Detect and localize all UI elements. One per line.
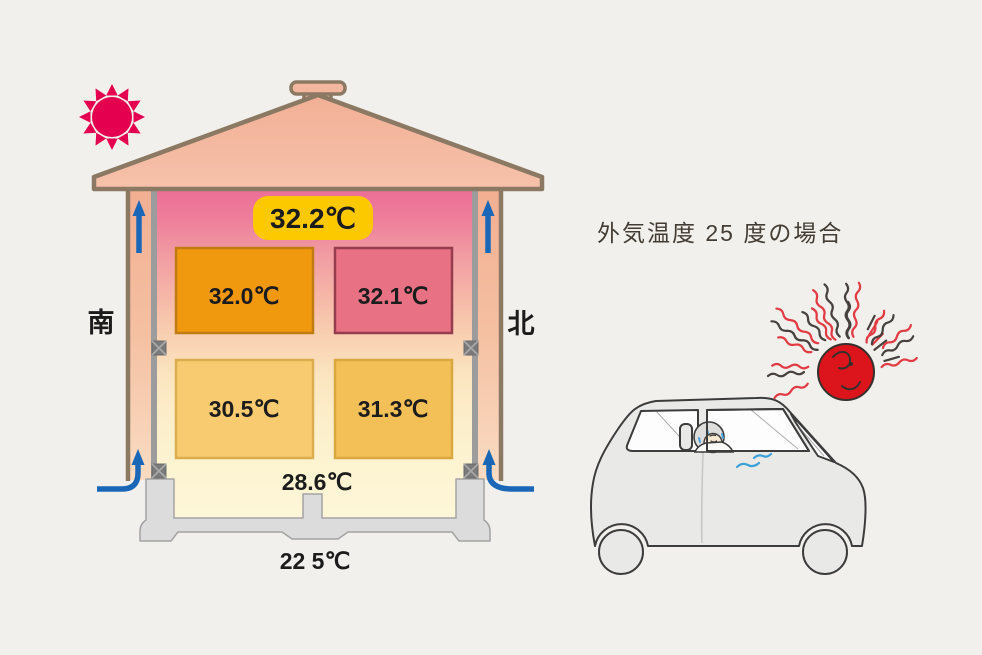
room-temp-label: 31.3℃ (358, 396, 429, 422)
sun-core (92, 97, 132, 137)
room-temp-label: 32.1℃ (358, 283, 429, 309)
inner-wall-south (151, 187, 157, 480)
room-temp-label: 30.5℃ (209, 396, 280, 422)
joint-marker (464, 341, 478, 355)
car-illustration (591, 398, 866, 574)
wheel-front (803, 530, 847, 574)
seat-headrest (680, 424, 692, 450)
room-temp-label: 32.0℃ (209, 283, 280, 309)
wheel-rear (599, 530, 643, 574)
attic-temp-label: 32.2℃ (270, 203, 356, 234)
sun-eye (849, 362, 853, 366)
condition-heading: 外気温度 25 度の場合 (597, 220, 843, 246)
north-label: 北 (508, 309, 535, 339)
chimney-cap (291, 82, 345, 94)
joint-marker (152, 464, 166, 478)
thermal-diagram-scene: 32.2℃ 32.0℃ 32.1℃ 30.5℃ 31.3℃ 28.6℃ 22 5… (0, 0, 982, 655)
roof (94, 95, 542, 189)
underfloor-temp-label: 28.6℃ (282, 469, 353, 495)
hot-sun-icon (768, 283, 917, 400)
joint-marker (464, 464, 478, 478)
page-background: 32.2℃ 32.0℃ 32.1℃ 30.5℃ 31.3℃ 28.6℃ 22 5… (0, 0, 982, 655)
house-illustration: 32.2℃ 32.0℃ 32.1℃ 30.5℃ 31.3℃ 28.6℃ 22 5… (79, 82, 542, 574)
ground-temp-label: 22 5℃ (280, 548, 351, 574)
south-label: 南 (88, 308, 115, 338)
joint-marker (152, 341, 166, 355)
sun-icon (79, 84, 145, 150)
inner-wall-north (472, 187, 478, 480)
